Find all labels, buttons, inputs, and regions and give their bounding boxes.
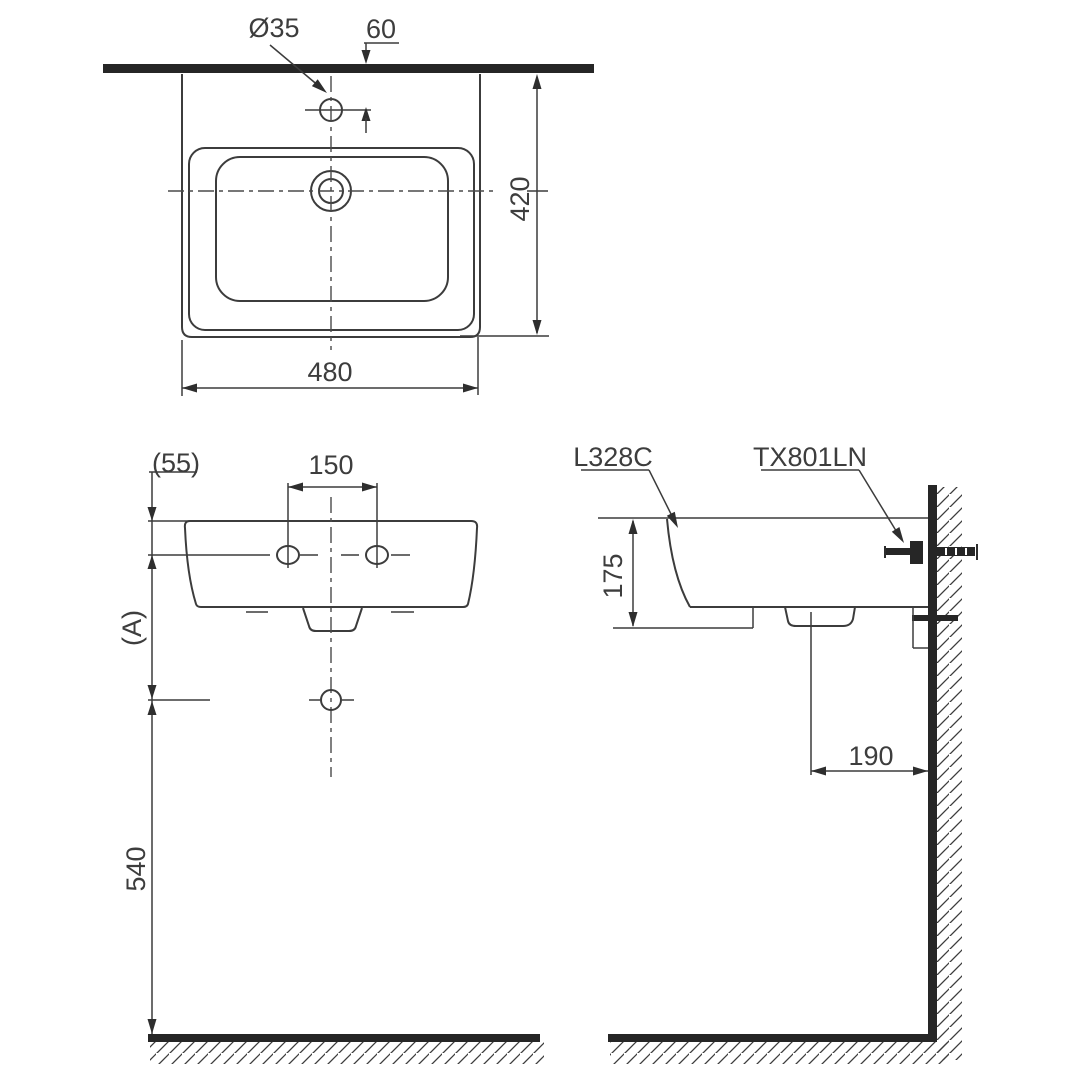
- depth-arrow-top: [533, 74, 542, 89]
- dim-drain-offset: 190: [848, 741, 893, 771]
- side-view: L328C TX801LN 175 190: [573, 442, 977, 1064]
- dim-width: 480: [307, 357, 352, 387]
- height-arrow-down: [148, 1019, 157, 1034]
- fitting-leader-line: [859, 470, 898, 534]
- drain-outlet-through-wall: [912, 615, 958, 621]
- dim-front-depth: 175: [598, 553, 628, 598]
- hole-spacing-arrow-right: [362, 483, 377, 492]
- hole-offset-arrow-down: [362, 50, 371, 64]
- a-arrow-down: [148, 685, 157, 699]
- floor-hatch-front: [150, 1042, 544, 1064]
- width-arrow-right: [463, 384, 478, 393]
- dim-faucet-hole-diameter: Ø35: [248, 13, 299, 43]
- technical-drawing-page: Ø35 60 420 480: [0, 0, 1090, 1090]
- front-view: 150 (55) (A) 540: [117, 448, 544, 1064]
- width-arrow-left: [182, 384, 197, 393]
- top-view: Ø35 60 420 480: [103, 13, 594, 396]
- hole-arrow-up: [148, 555, 157, 569]
- wall-section-side-view: [928, 485, 937, 1041]
- front-depth-arrow-up: [629, 519, 638, 534]
- label-lavatory-model: L328C: [573, 442, 653, 472]
- floor-hatch-side: [610, 1042, 950, 1064]
- dim-depth: 420: [505, 176, 535, 221]
- dim-hole-spacing: 150: [308, 450, 353, 480]
- dim-hole-offset: 60: [366, 14, 396, 44]
- lavatory-leader-line: [649, 470, 672, 516]
- wall-hatch: [937, 487, 962, 1060]
- fitting-leader-arrow: [892, 527, 904, 543]
- dim-drain-height: 540: [121, 846, 151, 891]
- depth-arrow-bottom: [533, 320, 542, 335]
- drain-offset-arrow-right: [913, 767, 928, 776]
- lavatory-installation-diagram: Ø35 60 420 480: [0, 0, 1090, 1090]
- faucet-spout-stub: [886, 548, 912, 555]
- drain-offset-arrow-left: [811, 767, 826, 776]
- drain-fitting-front: [303, 608, 362, 631]
- floor-front-view: [148, 1034, 540, 1042]
- floor-side-view: [608, 1034, 937, 1042]
- rim-arrow-down: [148, 507, 157, 521]
- dim-hole-to-drain: (A): [117, 610, 147, 646]
- label-fitting-model: TX801LN: [753, 442, 867, 472]
- wall-section-top-view: [103, 64, 594, 73]
- hole-spacing-arrow-left: [288, 483, 303, 492]
- dim-rim-to-hole: (55): [152, 448, 200, 478]
- height-arrow-up: [148, 701, 157, 715]
- basin-front-curve: [667, 519, 690, 607]
- front-depth-arrow-down: [629, 612, 638, 627]
- drain-trap-profile: [785, 607, 855, 626]
- faucet-flange: [910, 541, 923, 564]
